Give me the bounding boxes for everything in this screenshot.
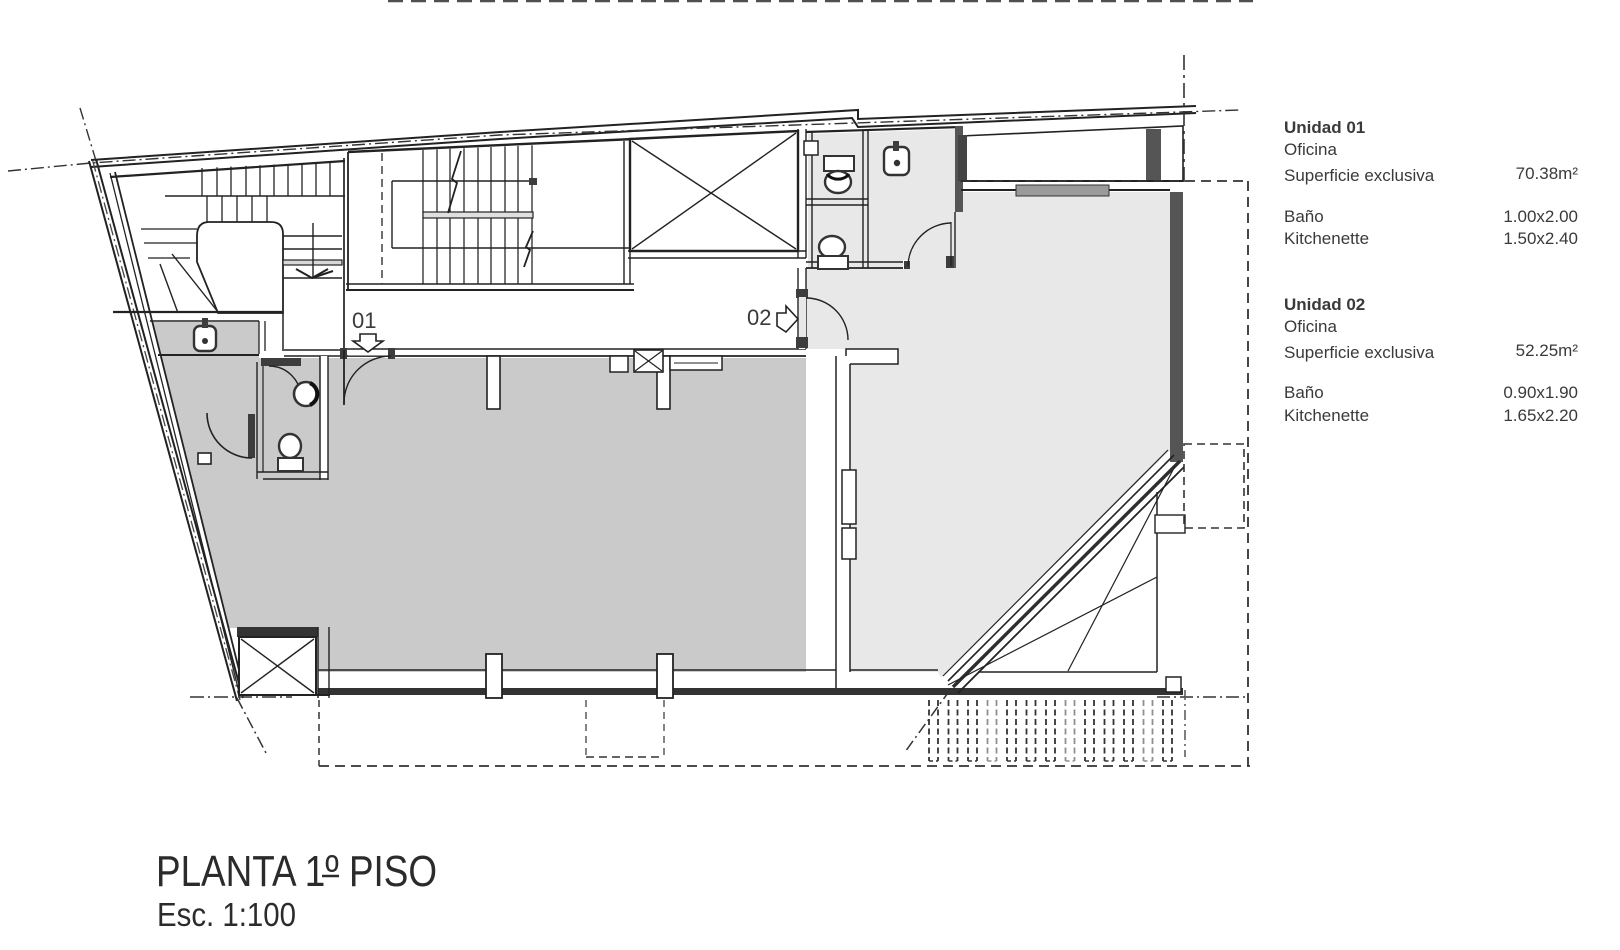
svg-text:Superficie exclusiva: Superficie exclusiva (1284, 166, 1435, 185)
svg-text:Esc. 1:100: Esc. 1:100 (157, 896, 296, 933)
svg-text:Oficina: Oficina (1284, 140, 1337, 159)
svg-text:01: 01 (352, 308, 376, 333)
svg-text:1.65x2.20: 1.65x2.20 (1503, 406, 1578, 425)
svg-text:Baño: Baño (1284, 207, 1324, 226)
svg-text:Oficina: Oficina (1284, 317, 1337, 336)
svg-text:Unidad 01: Unidad 01 (1284, 118, 1365, 137)
svg-text:02: 02 (747, 305, 771, 330)
svg-text:70.38m²: 70.38m² (1516, 164, 1579, 183)
svg-text:Superficie exclusiva: Superficie exclusiva (1284, 343, 1435, 362)
svg-text:Kitchenette: Kitchenette (1284, 229, 1369, 248)
svg-text:Unidad 02: Unidad 02 (1284, 295, 1365, 314)
svg-text:1.50x2.40: 1.50x2.40 (1503, 229, 1578, 248)
svg-text:Kitchenette: Kitchenette (1284, 406, 1369, 425)
svg-text:52.25m²: 52.25m² (1516, 341, 1579, 360)
svg-text:Baño: Baño (1284, 383, 1324, 402)
svg-text:PLANTA 1º PISO: PLANTA 1º PISO (156, 847, 437, 896)
svg-text:0.90x1.90: 0.90x1.90 (1503, 383, 1578, 402)
svg-text:1.00x2.00: 1.00x2.00 (1503, 207, 1578, 226)
